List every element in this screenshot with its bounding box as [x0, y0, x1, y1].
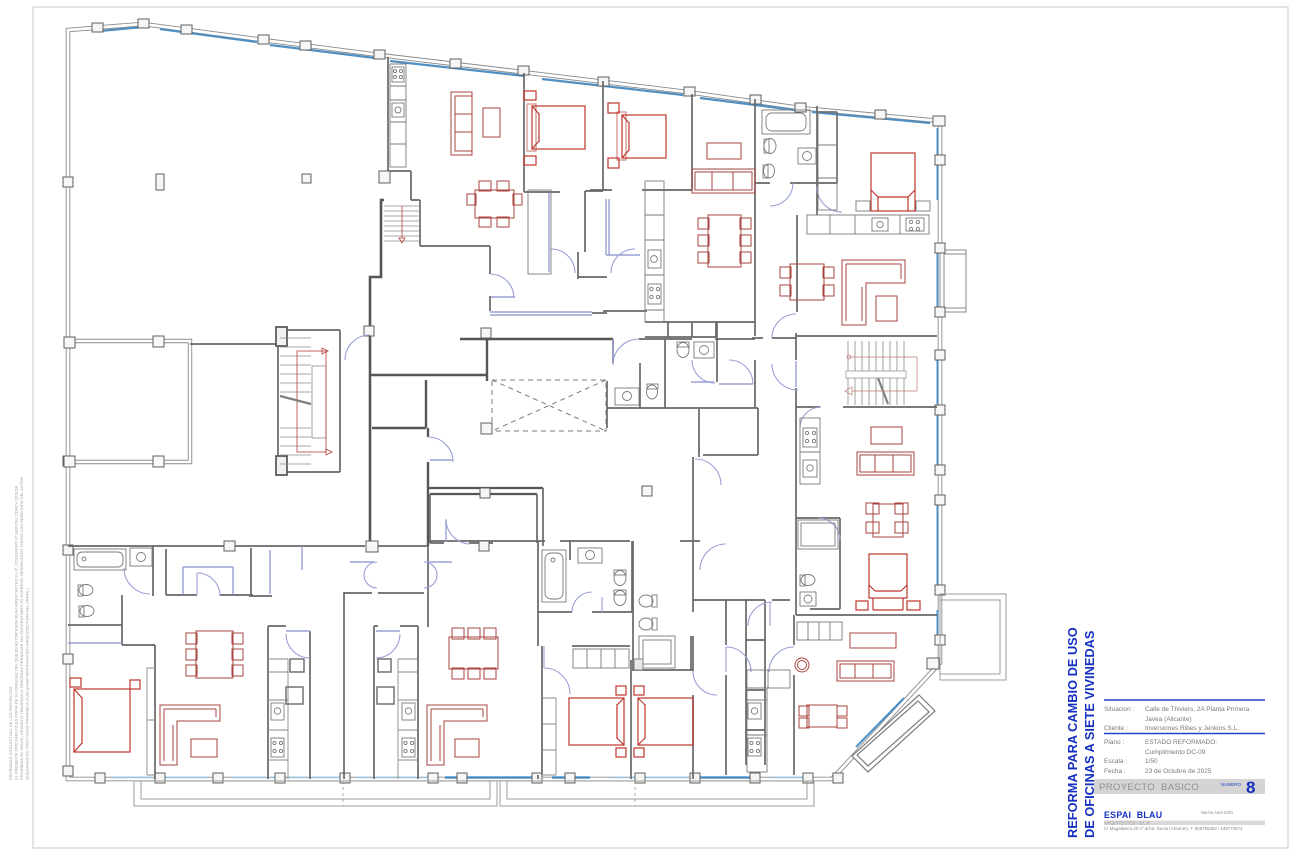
svg-text:Escala :: Escala : — [1104, 758, 1127, 765]
svg-text:Situacion :: Situacion : — [1104, 706, 1135, 713]
svg-text:Calle de Thiviers, 2A Planta P: Calle de Thiviers, 2A Planta Primera — [1145, 706, 1250, 713]
svg-text:Nacho Artal Grifo: Nacho Artal Grifo — [1201, 810, 1234, 815]
svg-text:EL PRESENTE DOCUMENTO ES COPIA: EL PRESENTE DOCUMENTO ES COPIA DE SU ORI… — [14, 485, 19, 780]
svg-text:Javea (Alicante): Javea (Alicante) — [1145, 716, 1192, 723]
svg-text:Cumplimiento DC-09: Cumplimiento DC-09 — [1145, 749, 1206, 756]
svg-text:QUEDANDO EN TODO CASO PROHIBID: QUEDANDO EN TODO CASO PROHIBIDA CUALQUIE… — [25, 588, 30, 780]
svg-text:Plano :: Plano : — [1104, 739, 1124, 746]
svg-text:ESTADO REFORMADO:: ESTADO REFORMADO: — [1145, 739, 1217, 746]
svg-text:Cliente :: Cliente : — [1104, 725, 1128, 732]
svg-text:DE OFICINAS A SIETE VIVINEDAS: DE OFICINAS A SIETE VIVINEDAS — [1082, 630, 1097, 838]
svg-text:PROHIBIDA SU VENTA, CESION O T: PROHIBIDA SU VENTA, CESION O TRASPASO A … — [19, 477, 24, 780]
svg-text:23 de Octubre de 2025: 23 de Octubre de 2025 — [1145, 768, 1212, 775]
svg-text:PROPIEDAD INTELECTUAL DE LOS P: PROPIEDAD INTELECTUAL DE LOS PROYECTOS — [8, 686, 13, 780]
svg-text:REFORMA PARA CAMBIO DE USO: REFORMA PARA CAMBIO DE USO — [1065, 627, 1080, 838]
svg-text:Inversiones Ribes y Jenkins S.: Inversiones Ribes y Jenkins S.L. — [1145, 725, 1239, 732]
svg-text:8: 8 — [1246, 778, 1255, 797]
svg-text:NUMERO: NUMERO — [1221, 782, 1241, 787]
svg-text:C/ Magallanes,20 2º dcha. Deni: C/ Magallanes,20 2º dcha. Denia (Alicant… — [1104, 826, 1243, 831]
svg-text:PROYECTO BASICO: PROYECTO BASICO — [1099, 782, 1199, 793]
svg-text:ARQUITECTES - S.L.P.: ARQUITECTES - S.L.P. — [1104, 821, 1151, 826]
svg-text:Fecha :: Fecha : — [1104, 768, 1126, 775]
svg-text:ESPAI BLAU: ESPAI BLAU — [1104, 810, 1162, 820]
svg-text:1/50: 1/50 — [1145, 758, 1158, 765]
